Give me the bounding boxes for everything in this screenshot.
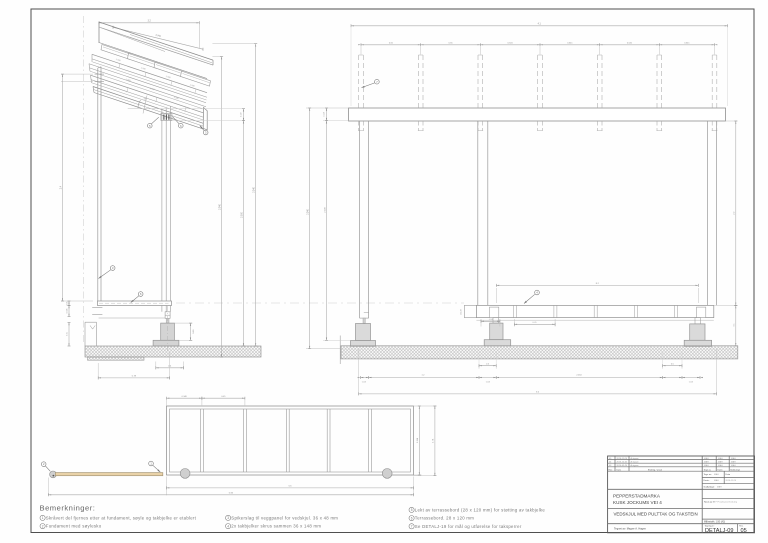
svg-text:2x takbjelker skrus sammen 36: 2x takbjelker skrus sammen 36 x 148 mm [231, 524, 321, 529]
svg-text:0.641: 0.641 [684, 42, 690, 44]
svg-text:Rev.: Rev. [609, 469, 614, 471]
svg-text:0.641: 0.641 [567, 42, 573, 44]
svg-text:Fundament med søylesko: Fundament med søylesko [46, 524, 102, 529]
svg-text:3.240: 3.240 [254, 186, 256, 192]
svg-text:Navn på fil:: Navn på fil: [704, 501, 715, 504]
svg-text:MAH: MAH [731, 464, 736, 467]
svg-text:Skråvert del fjernes etter at: Skråvert del fjernes etter at fundament,… [46, 515, 197, 520]
svg-text:0.148: 0.148 [689, 382, 693, 384]
svg-text:0.25: 0.25 [67, 332, 69, 336]
svg-text:0.148: 0.148 [240, 112, 242, 117]
svg-text:MAH: MAH [731, 461, 736, 464]
svg-text:2.190: 2.190 [324, 206, 326, 212]
svg-text:Tegnet av: Magne A. Hagen: Tegnet av: Magne A. Hagen [614, 527, 647, 531]
svg-text:Spikerslag til veggpanel for v: Spikerslag til veggpanel for vedskjul. 3… [231, 515, 338, 520]
svg-text:MAH: MAH [718, 464, 723, 467]
svg-text:0.340: 0.340 [182, 396, 188, 398]
svg-text:05: 05 [741, 528, 747, 534]
svg-text:Bemerkninger:: Bemerkninger: [40, 504, 96, 513]
svg-text:P:\Prosj\tegnsett\ved.dwg: P:\Prosj\tegnsett\ved.dwg [716, 501, 737, 504]
svg-text:Tegning nr:: Tegning nr: [705, 525, 715, 527]
svg-text:Tegn av:: Tegn av: [704, 474, 713, 476]
svg-text:2016-11-20: 2016-11-20 [726, 480, 737, 482]
svg-text:Kontr.: Kontr. [718, 468, 724, 471]
svg-text:Rev.: Rev. [739, 525, 743, 527]
svg-text:2.990: 2.990 [241, 211, 243, 217]
svg-text:A utgave: A utgave [631, 464, 640, 467]
svg-text:MAH: MAH [714, 473, 719, 476]
svg-text:MAH: MAH [731, 457, 736, 460]
svg-text:A utgave: A utgave [631, 457, 640, 460]
svg-text:PEPPERSTADMARKA: PEPPERSTADMARKA [613, 493, 661, 498]
svg-text:0.05: 0.05 [67, 302, 69, 306]
svg-text:MAH: MAH [717, 485, 722, 488]
svg-text:3.240: 3.240 [307, 208, 309, 214]
svg-text:KUSK JOCKUMS VEI 4: KUSK JOCKUMS VEI 4 [613, 500, 662, 505]
svg-text:2016-09-24: 2016-09-24 [617, 465, 628, 467]
svg-text:2x148: 2x148 [461, 308, 463, 314]
svg-text:Se DETALJ-19 for mål og utføre: Se DETALJ-19 for mål og utførelse for ta… [415, 524, 522, 529]
svg-text:Kontr:: Kontr: [704, 479, 710, 482]
svg-text:6: 6 [411, 516, 413, 520]
svg-text:1.138: 1.138 [417, 437, 419, 443]
svg-text:Lekt av terrassebord (28 x 120: Lekt av terrassebord (28 x 120 mm) for s… [415, 507, 546, 512]
svg-text:VEDSKJUL MED PULTTAK OG TAKSTE: VEDSKJUL MED PULTTAK OG TAKSTEIN [614, 511, 698, 516]
svg-text:MAH: MAH [704, 457, 709, 460]
svg-text:0.148: 0.148 [486, 382, 490, 384]
svg-text:MAH: MAH [718, 457, 723, 460]
svg-text:DETALJ-09: DETALJ-09 [705, 528, 734, 534]
svg-text:5: 5 [411, 508, 413, 512]
svg-text:Dato: Dato [726, 473, 731, 476]
svg-text:2: 2 [42, 524, 44, 528]
svg-text:7: 7 [411, 525, 413, 529]
svg-text:2016-11-20: 2016-11-20 [617, 458, 628, 460]
svg-text:2016-10-02: 2016-10-02 [617, 462, 628, 464]
svg-text:0.148: 0.148 [362, 382, 366, 384]
svg-text:Terrassebord. 28 x 120 mm: Terrassebord. 28 x 120 mm [415, 516, 474, 521]
svg-text:0.641: 0.641 [627, 42, 633, 44]
svg-text:Endring / årsak: Endring / årsak [648, 468, 663, 471]
svg-text:MAH: MAH [718, 461, 723, 464]
svg-text:Tegn av: Tegn av [704, 469, 712, 471]
svg-text:Godkj/tegn:: Godkj/tegn: [704, 485, 716, 488]
svg-text:0.5: 0.5 [734, 324, 736, 327]
svg-text:3: 3 [227, 516, 229, 520]
svg-text:MAH: MAH [714, 479, 719, 482]
svg-text:2.464: 2.464 [576, 375, 582, 377]
svg-text:0.148: 0.148 [67, 309, 69, 314]
svg-text:MAH: MAH [704, 464, 709, 467]
svg-text:1: 1 [42, 516, 44, 520]
svg-text:0.148: 0.148 [323, 112, 325, 117]
svg-text:A utgave: A utgave [631, 461, 640, 464]
svg-text:Målestokk: 1:50 (A3): Målestokk: 1:50 (A3) [704, 521, 725, 524]
svg-text:2.540: 2.540 [219, 203, 221, 209]
svg-text:MAH: MAH [704, 461, 709, 464]
svg-text:0.641: 0.641 [507, 42, 513, 44]
svg-text:4: 4 [227, 524, 229, 528]
svg-text:0.148: 0.148 [489, 319, 493, 321]
svg-text:Godkj tegn: Godkj tegn [730, 468, 741, 471]
